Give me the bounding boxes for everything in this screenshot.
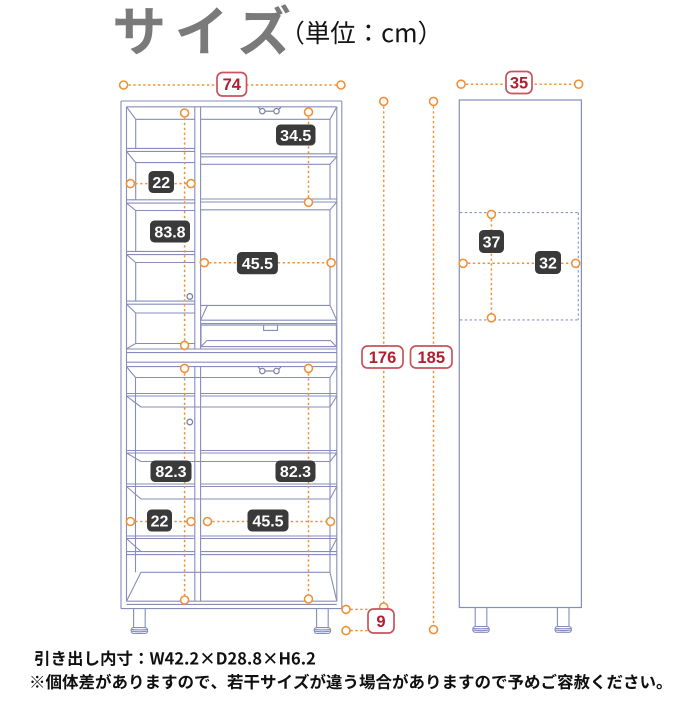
svg-text:35: 35 — [510, 74, 528, 92]
svg-text:83.8: 83.8 — [154, 224, 185, 241]
svg-text:45.5: 45.5 — [252, 513, 283, 530]
svg-text:45.5: 45.5 — [242, 256, 273, 273]
svg-text:74: 74 — [223, 76, 242, 94]
svg-text:37: 37 — [483, 234, 501, 251]
svg-text:22: 22 — [152, 175, 170, 192]
svg-text:82.3: 82.3 — [280, 464, 311, 481]
svg-text:9: 9 — [376, 613, 385, 631]
svg-text:176: 176 — [369, 349, 397, 367]
svg-text:185: 185 — [417, 349, 445, 367]
svg-text:32: 32 — [539, 255, 557, 272]
svg-text:22: 22 — [151, 513, 169, 530]
svg-text:34.5: 34.5 — [280, 128, 311, 145]
svg-text:82.3: 82.3 — [155, 464, 186, 481]
